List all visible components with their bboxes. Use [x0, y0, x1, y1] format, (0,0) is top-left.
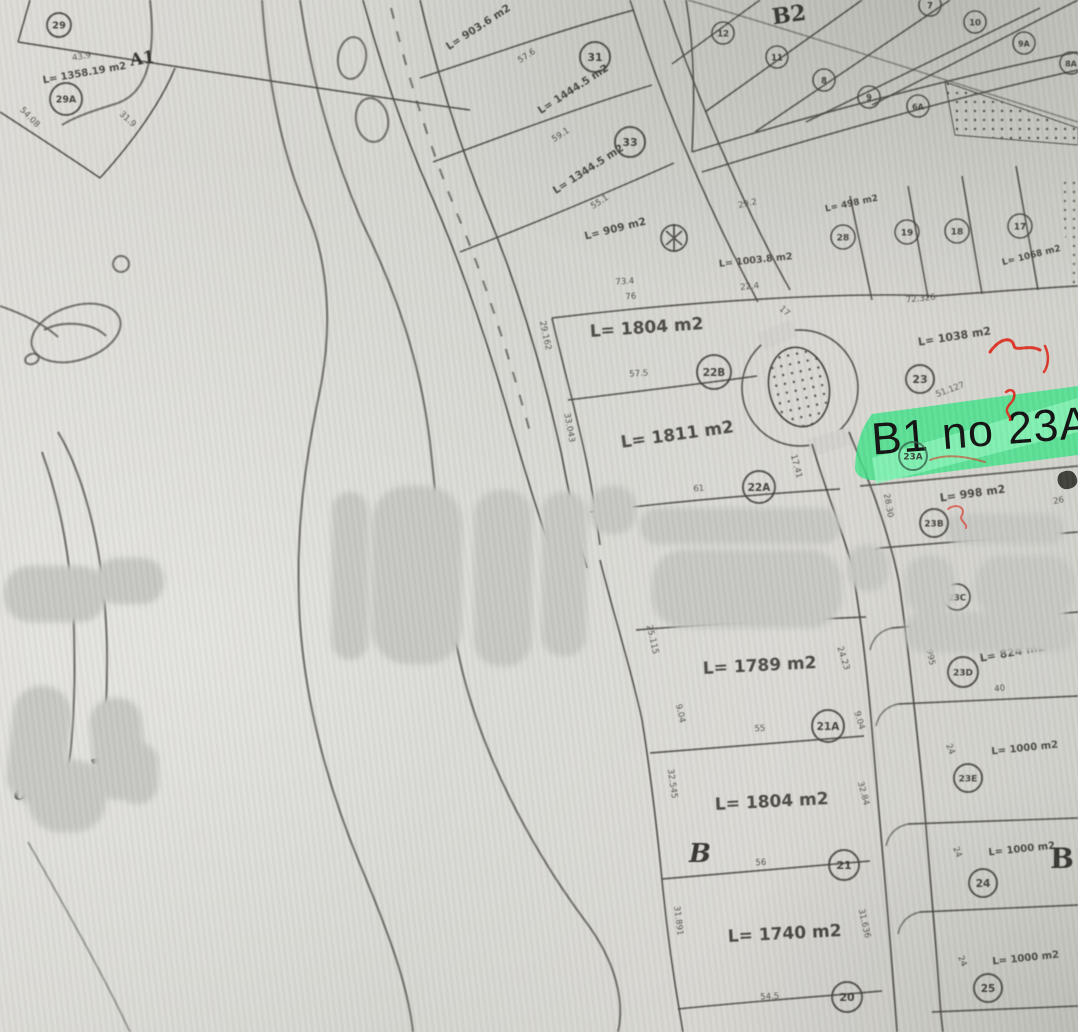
- red-scribble: [990, 340, 1040, 352]
- ink-blotch: [1058, 471, 1078, 490]
- plot-number-label: 23A: [903, 453, 923, 463]
- red-scribble: [948, 506, 966, 528]
- red-scribble: [1044, 346, 1048, 372]
- highlighted-plot-b1-23a[interactable]: B1 no 23A: [855, 386, 1078, 484]
- annotation-overlay: B1 no 23A 23A: [0, 0, 1078, 1032]
- cadastral-map: olin: [0, 0, 1078, 1032]
